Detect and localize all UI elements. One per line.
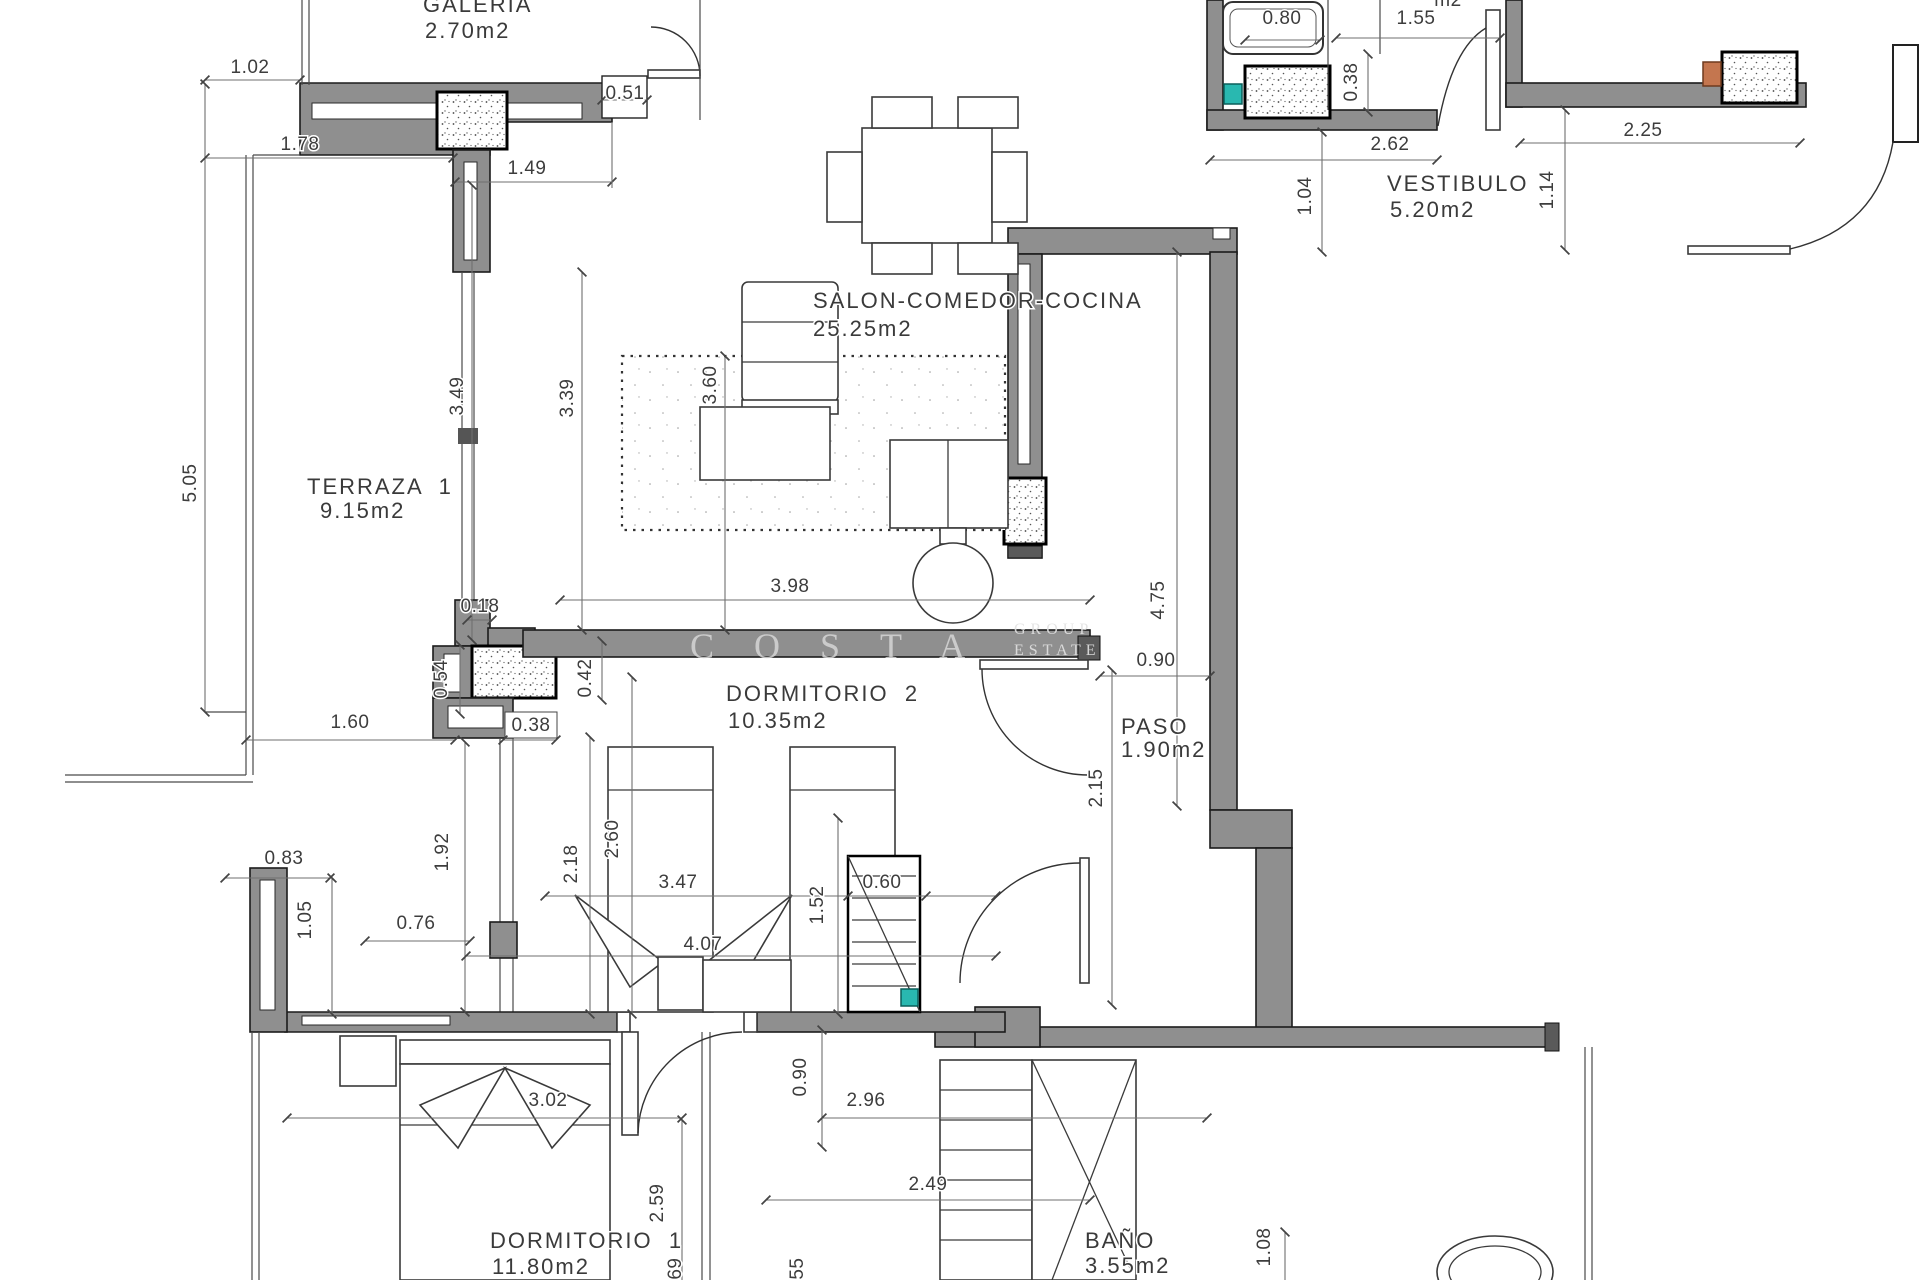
chair [872,243,932,274]
door-jamb [1008,546,1042,558]
wall-cap [1545,1023,1559,1051]
dimension-label: 0.69 [665,1258,686,1280]
column [1245,66,1330,118]
fixture-marker-teal [901,989,918,1006]
wardrobe-module [658,957,703,1010]
room-area-bano: 3.55m2 [1085,1253,1170,1278]
dimension-label: 2.96 [847,1090,886,1111]
door-arc [960,863,1080,983]
bathtub [1437,1236,1553,1280]
chair [958,243,1018,274]
dimension-label: 3.39 [557,379,578,418]
floor-plan-drawing: GALERIA 2.70m2 TERRAZA 1 9.15m2 SALON-CO… [0,0,1920,1280]
dimension-label: 1.52 [807,886,828,925]
dimension-label: 0.80 [1263,8,1302,29]
dimension-label: 3.60 [700,366,721,405]
dimension-label: 2.49 [909,1174,948,1195]
room-area-paso: 1.90m2 [1121,737,1206,762]
door-leaf [1688,246,1790,254]
column [437,92,507,149]
dimension-label: 0.38 [1341,63,1362,102]
dimension-label: 0.83 [265,848,304,869]
column [1722,52,1797,103]
dimension-label: 0.55 [787,1258,808,1280]
dimension-label: 1.60 [331,712,370,733]
room-area-dormitorio1: 11.80m2 [492,1254,590,1279]
wall [1008,228,1237,254]
dimension-label: 1.55 [1397,8,1436,29]
wall [757,1012,1005,1032]
window-slot [260,880,275,1010]
coffee-table [700,407,830,480]
room-label-galeria: GALERIA [423,0,532,17]
dimension-label: 2.15 [1086,769,1107,808]
dimension-label: 1.49 [508,158,547,179]
room-area-salon: 25.25m2 [813,316,913,341]
room-label-bano: BAÑO [1085,1228,1155,1253]
wall [1210,252,1237,810]
dimension-label: 2.59 [647,1184,668,1223]
room-area-terraza: 9.15m2 [320,498,405,523]
dimension-label: 1.92 [432,833,453,872]
chair [827,152,862,222]
nightstand [340,1036,396,1086]
dimension-label: 0.54 [431,660,452,699]
door-arc [651,27,700,76]
room-label-salon: SALON-COMEDOR-COCINA [813,288,1143,313]
counter-connector [940,528,966,544]
room-area-vestibulo: 5.20m2 [1390,197,1475,222]
room-label-vestibulo: VESTIBULO [1387,171,1528,196]
wardrobe-module [703,960,791,1012]
fixture-marker-teal [1224,84,1242,104]
dining-table [862,128,992,243]
entrance-door-arc [1790,142,1893,249]
dimension-label: 1.02 [231,57,270,78]
wall [1210,810,1292,848]
watermark-sub1: GROUP [1014,621,1093,638]
window-slot [302,1016,450,1025]
dimension-label: 1.78 [281,134,320,155]
room-area-dormitorio2: 10.35m2 [728,708,828,733]
room-area-galeria: 2.70m2 [425,18,510,43]
fixture-marker-orange [1703,62,1721,86]
clipped-label-fragment: m2 [1434,0,1461,11]
room-label-dormitorio1: DORMITORIO 1 [490,1228,683,1253]
watermark-sub2: ESTATE [1014,642,1101,659]
door-leaf [648,70,700,78]
floor-plan: GALERIA 2.70m2 TERRAZA 1 9.15m2 SALON-CO… [0,0,1920,1280]
dimension-label: 0.90 [1137,650,1176,671]
dimension-label: 4.75 [1148,581,1169,620]
chair [872,97,932,128]
dimension-label: 0.90 [790,1058,811,1097]
dimension-label: 1.05 [295,901,316,940]
wall [1256,848,1292,1038]
dimension-label: 3.98 [771,576,810,597]
window-slot [464,162,477,260]
door-jamb [458,428,478,444]
dimension-label: 1.04 [1295,177,1316,216]
watermark-main: COSTA [690,626,1005,666]
chair [958,97,1018,128]
kitchen-counter [890,440,1008,528]
dimension-label: 1.14 [1537,171,1558,210]
door-jamb [617,1012,630,1032]
door-arc [982,669,1088,775]
round-sink [913,543,993,623]
wall-notch [1213,228,1230,239]
dimension-label: 0.60 [863,872,902,893]
dimension-label: 0.18 [461,596,500,617]
dimension-label: 2.62 [1371,134,1410,155]
bed-headboard [400,1040,610,1064]
dimension-label: 2.60 [602,820,623,859]
dimension-label: 2.25 [1624,120,1663,141]
column [1004,478,1046,544]
dimension-label: 0.51 [606,83,645,104]
dimension-label: 2.18 [561,845,582,884]
dimension-label: 0.76 [397,913,436,934]
dimension-label: 0.42 [575,659,596,698]
dimension-label: 1.08 [1254,1228,1275,1267]
room-label-dormitorio2: DORMITORIO 2 [726,681,919,706]
shower [940,1060,1032,1280]
chair [992,152,1027,222]
window-slot [448,706,503,728]
room-label-paso: PASO [1121,714,1189,739]
dimension-label: 3.49 [447,377,468,416]
door-arc [1438,28,1486,126]
entrance-door-frame [1893,45,1918,142]
room-label-terraza: TERRAZA 1 [307,474,453,499]
dimension-label: 3.47 [659,872,698,893]
wall [490,922,517,958]
door-leaf [622,1032,638,1135]
dimension-label: 5.05 [180,464,201,503]
dimension-label: 4.07 [684,934,723,955]
door-leaf [1080,858,1089,983]
dimension-label: 0.38 [512,715,551,736]
door-frame [1486,10,1500,130]
door-jamb [744,1012,757,1032]
dimension-label: 3.02 [529,1090,568,1111]
